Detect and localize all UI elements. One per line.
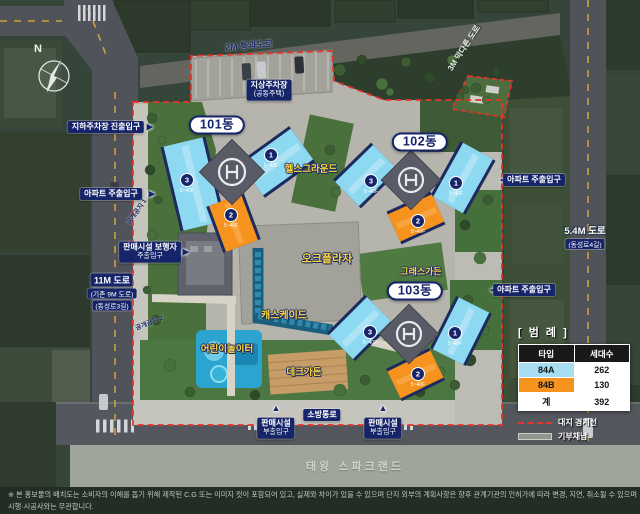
- unit-badge-101-3: 3 5~40F: [180, 174, 194, 195]
- svg-text:3: 3: [369, 177, 373, 186]
- svg-text:5~40F: 5~40F: [363, 340, 377, 346]
- deck-garden-label: 데크가든: [287, 364, 322, 378]
- grass-garden-label: 그래스가든: [400, 265, 441, 278]
- legend-boundary-sample: 대지 경계선: [518, 417, 638, 428]
- building-101-pill: 101동: [189, 116, 245, 135]
- svg-text:5~40F: 5~40F: [411, 382, 425, 388]
- svg-text:2: 2: [416, 370, 420, 379]
- svg-text:2: 2: [416, 217, 420, 226]
- svg-text:3: 3: [185, 176, 189, 185]
- unit-badge-101-2: 2 5~40F: [224, 209, 238, 230]
- svg-text:1: 1: [269, 151, 273, 160]
- unit-badge-102-2: 2 5~40F: [411, 215, 425, 236]
- legend-title: [ 범 례 ]: [518, 324, 638, 340]
- svg-text:5~40F: 5~40F: [180, 188, 194, 194]
- unit-badge-103-2: 2 5~40F: [411, 368, 425, 389]
- apt-main-entry-right-bottom-label: 아파트 주출입구: [493, 284, 555, 296]
- arrow-right-icon: ▶: [147, 122, 154, 133]
- building-103-pill: 103동: [387, 282, 443, 301]
- arrow-right-icon: ▶: [149, 189, 156, 200]
- legend-col-count: 세대수: [574, 345, 630, 363]
- svg-text:3: 3: [368, 328, 372, 337]
- apt-main-entry-left-label: 아파트 주출입구: [80, 188, 142, 200]
- legend-panel: [ 범 례 ] 타입 세대수 84A 262 84B 130 계 392 대지 …: [512, 324, 638, 445]
- svg-text:5~40F: 5~40F: [224, 223, 238, 229]
- arrow-up-icon: ▲: [379, 403, 388, 413]
- boundary-line-swatch: [518, 422, 552, 424]
- fire-lane-label: 소방통로: [303, 409, 340, 421]
- svg-text:5~40F: 5~40F: [449, 191, 463, 197]
- legend-row-84a: 84A 262: [519, 363, 630, 378]
- unit-badge-102-3: 3 5~40F: [364, 175, 378, 196]
- svg-text:1: 1: [454, 179, 458, 188]
- legend-row-84b: 84B 130: [519, 378, 630, 393]
- health-ground-label: 헬스그라운드: [285, 161, 337, 175]
- legend-table: 타입 세대수 84A 262 84B 130 계 392: [518, 344, 630, 411]
- unit-badge-103-3: 3 5~40F: [363, 326, 377, 347]
- donation-swatch: [518, 433, 552, 440]
- retail-sub-entry-left-label: 판매시설 부출입구: [257, 418, 294, 439]
- disclaimer-line-1: ※ 본 홍보물의 배치도는 소비자의 이해를 돕기 위해 제작된 C.G 또는 …: [8, 489, 640, 513]
- north-label: N: [34, 43, 42, 55]
- oak-plaza-label: 오크플라자: [302, 250, 353, 266]
- unit-badge-101-1: 1 5~40F: [264, 149, 278, 170]
- playground-label: 어린이놀이터: [201, 341, 253, 355]
- retail-pedestrian-entry-label: 판매시설 보행자 주출입구: [119, 242, 181, 263]
- legend-col-type: 타입: [519, 345, 575, 363]
- south-neighbor-band: 태왕 스파크랜드: [70, 445, 640, 487]
- svg-text:2: 2: [229, 211, 233, 220]
- north-compass: N: [24, 38, 78, 98]
- building-102-pill: 102동: [392, 133, 448, 152]
- right-road-label: 5.4M 도로 (동성로4길): [561, 223, 608, 249]
- arrow-right-icon: ▶: [183, 247, 190, 258]
- retail-sub-entry-right-label: 판매시설 부출입구: [364, 418, 401, 439]
- arrow-up-icon: ▲: [272, 403, 281, 413]
- left-road-label: 11M 도로 (기존 9M 도로) (동성로3길): [88, 274, 137, 311]
- legend-row-total: 계 392: [519, 393, 630, 411]
- svg-text:5~40F: 5~40F: [448, 341, 462, 347]
- svg-text:5~40F: 5~40F: [364, 189, 378, 195]
- cascade-label: 캐스케이드: [261, 307, 307, 322]
- svg-text:5~40F: 5~40F: [264, 163, 278, 169]
- site-plan-page: 3 5~40F 1 5~40F 2 5~40F: [0, 0, 640, 514]
- unit-badge-102-1: 1 5~40F: [449, 177, 463, 198]
- disclaimer-footer: ※ 본 홍보물의 배치도는 소비자의 이해를 돕기 위해 제작된 C.G 또는 …: [0, 487, 640, 514]
- legend-donation-sample: 기부채납: [518, 431, 638, 442]
- apt-main-entry-right-top-label: 아파트 주출입구: [503, 174, 565, 186]
- south-neighbor-label: 태왕 스파크랜드: [306, 458, 404, 474]
- svg-text:5~40F: 5~40F: [411, 229, 425, 235]
- underground-parking-entry-label: 지하주차장 진출입구: [68, 121, 144, 133]
- svg-text:1: 1: [453, 329, 457, 338]
- unit-badge-103-1: 1 5~40F: [448, 327, 462, 348]
- surface-parking-label: 지상주차장 (공동주택): [247, 80, 292, 101]
